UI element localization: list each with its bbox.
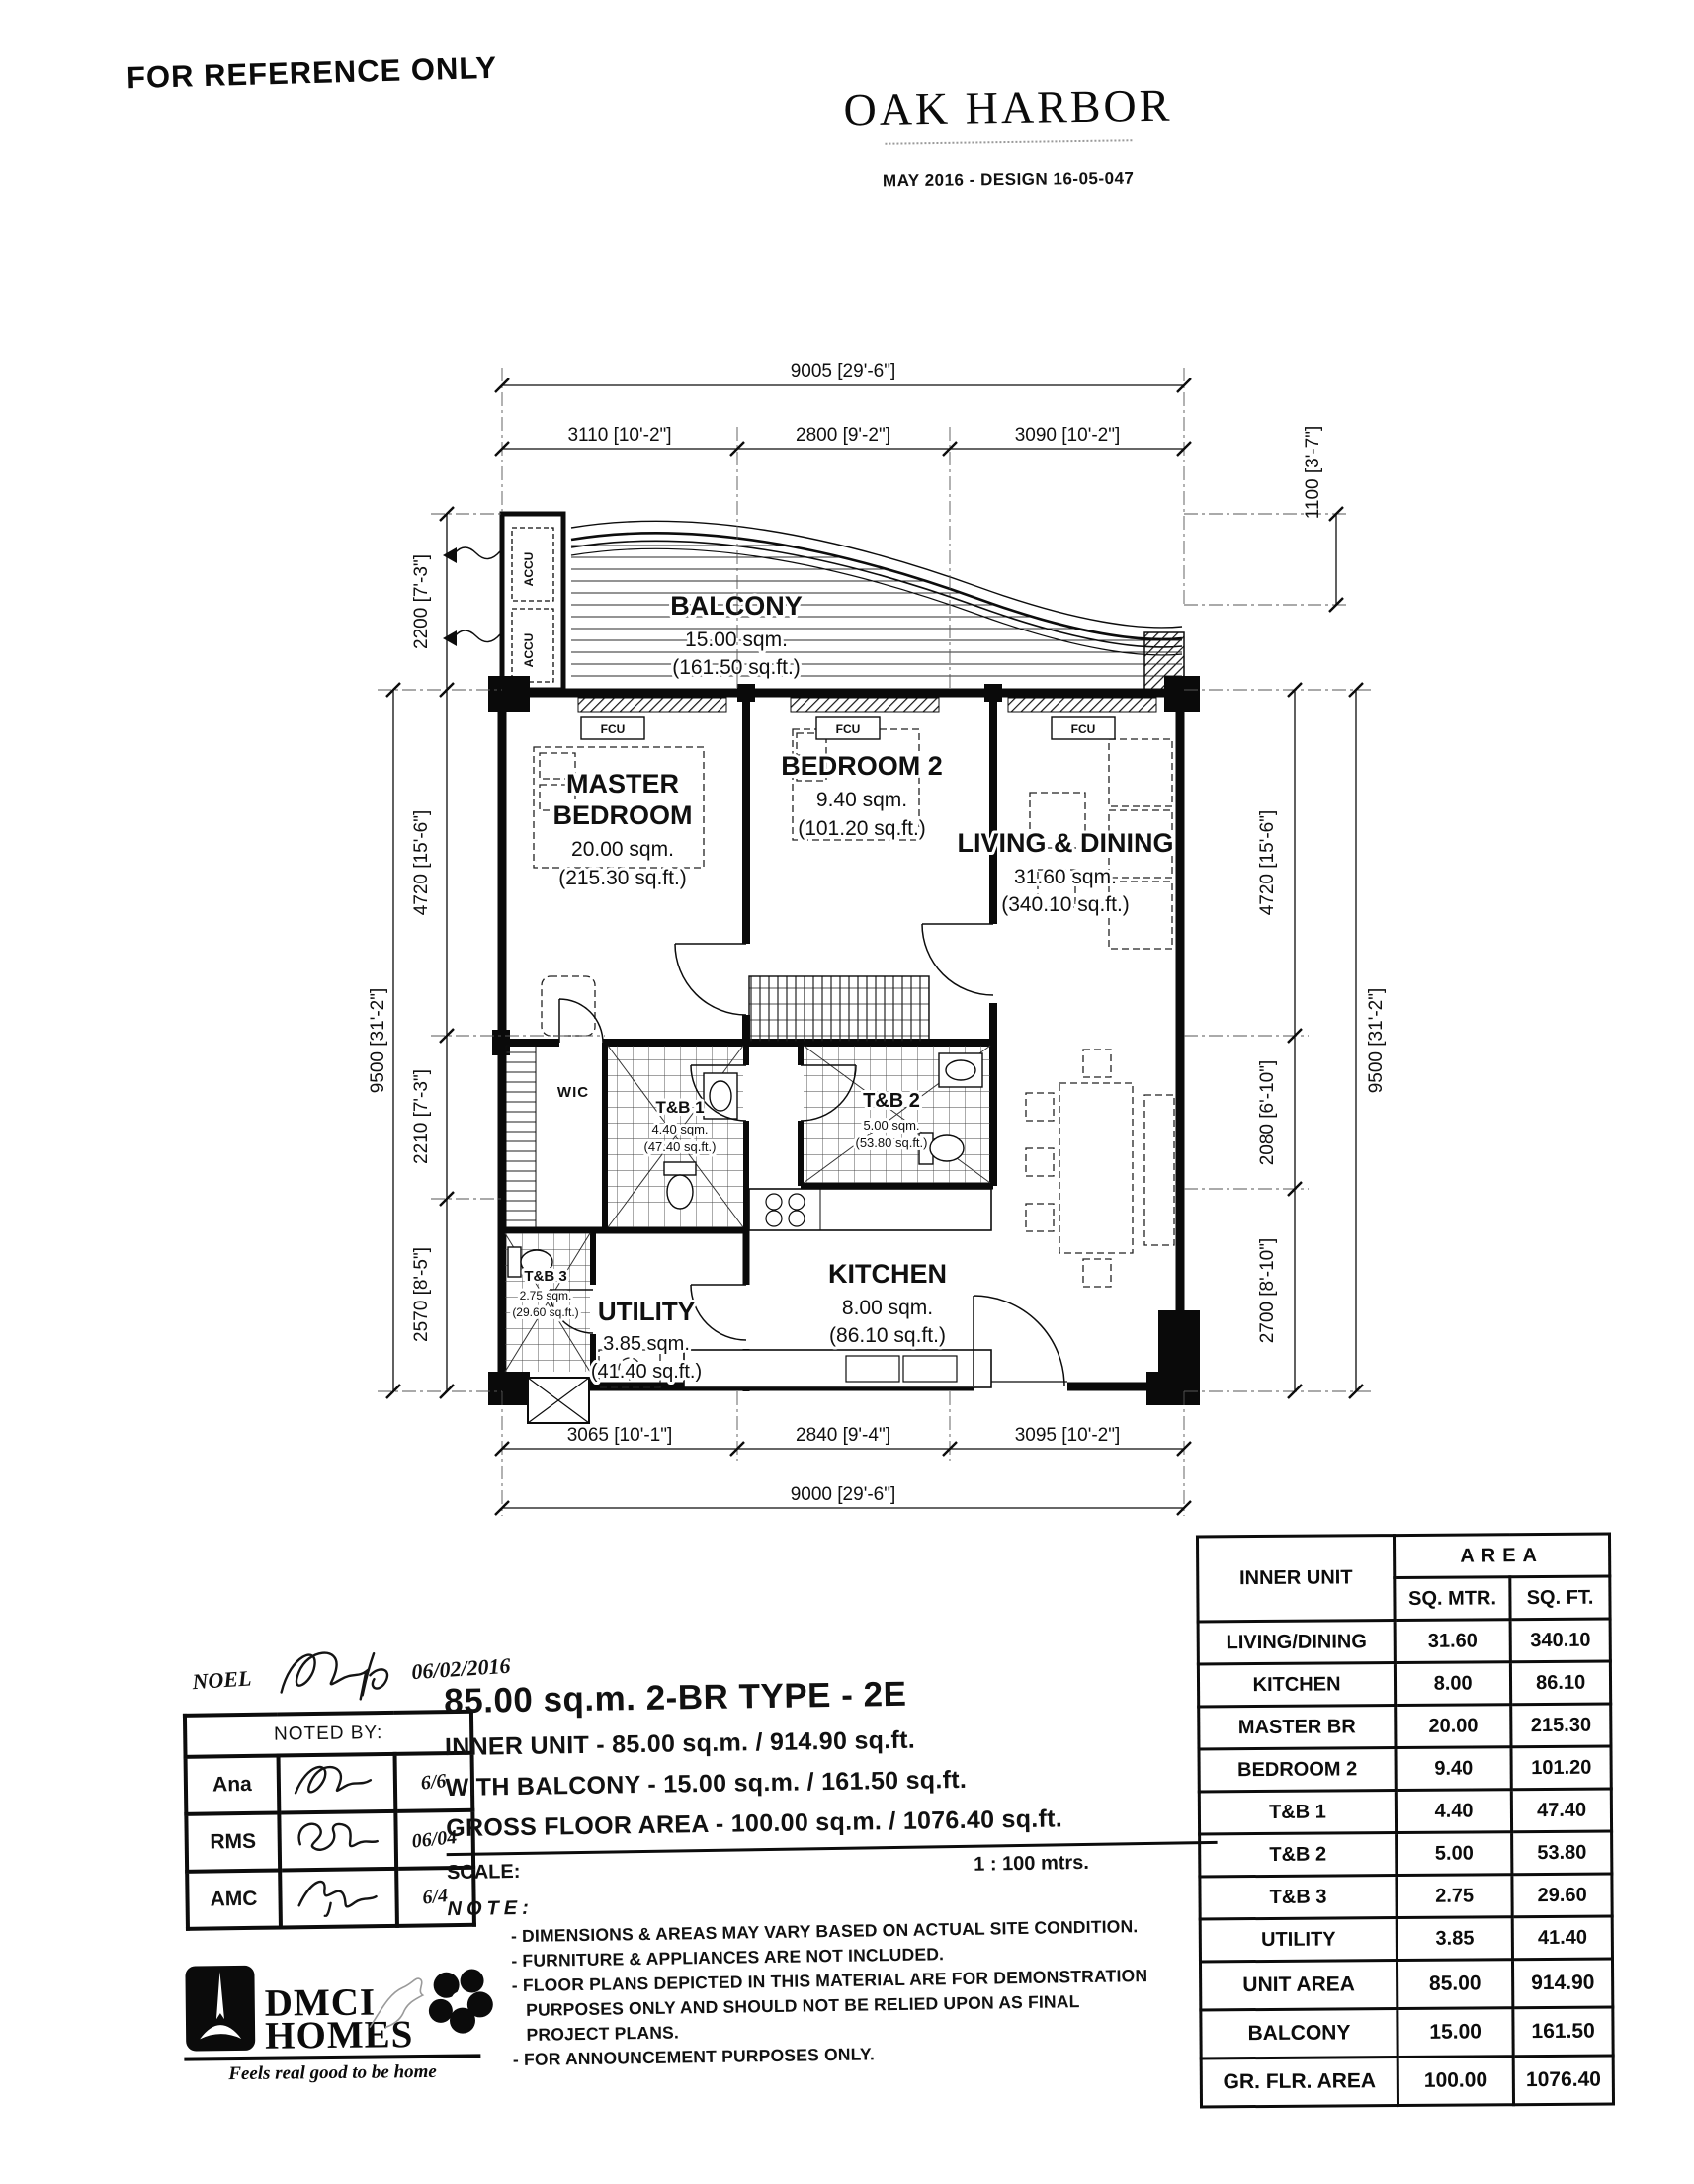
dim-bottom-total: 9000 [29'-6"]	[791, 1484, 896, 1505]
balcony-label: BALCONY	[670, 591, 803, 621]
row-label: LIVING/DINING	[1198, 1621, 1395, 1664]
utility-label: UTILITY	[598, 1297, 695, 1326]
signature-icon	[291, 1873, 386, 1917]
scale-value: 1 : 100 mtrs.	[974, 1852, 1089, 1877]
dim-left-seg: 2570 [8'-5"]	[411, 1247, 432, 1342]
table-row: AMC 6/4	[187, 1868, 474, 1929]
signer-name: RMS	[186, 1813, 280, 1872]
signature-icon	[290, 1758, 385, 1803]
table-row: RMS 06/04	[186, 1810, 473, 1872]
annotation-name: NOEL	[192, 1665, 252, 1695]
table-row: GR. FLR. AREA100.001076.40	[1201, 2056, 1613, 2107]
area-table-sqm-header: SQ. MTR.	[1395, 1577, 1511, 1621]
signature-icon	[290, 1815, 385, 1860]
dim-bottom-seg: 3065 [10'-1"]	[567, 1425, 673, 1446]
dim-right-seg: 4720 [15'-6"]	[1257, 810, 1278, 916]
master-bedroom-sqm: 20.00 sqm.	[571, 838, 674, 861]
master-bedroom-label: MASTER	[566, 769, 679, 798]
summary-line: INNER UNIT - 85.00 sq.m. / 914.90 sq.ft.	[445, 1722, 1216, 1762]
dim-top-seg: 3110 [10'-2"]	[567, 425, 671, 446]
dmci-homes-logo: DMCI HOMES Feels real good to be home	[183, 1959, 480, 2085]
signer-name: Ana	[186, 1756, 280, 1814]
row-sqm: 2.75	[1397, 1875, 1513, 1918]
signer-signature	[279, 1811, 396, 1871]
handwritten-annotation: NOEL 06/02/2016	[146, 1646, 483, 1715]
table-row: UNIT AREA85.00914.90	[1200, 1959, 1612, 2010]
tb3-sqm: 2.75 sqm.	[520, 1289, 572, 1302]
area-table-area-header: AREA	[1394, 1534, 1609, 1578]
tb3-label: T&B 3	[524, 1268, 566, 1285]
note-list: DIMENSIONS & AREAS MAY VARY BASED ON ACT…	[511, 1913, 1221, 2072]
row-sqft: 41.40	[1512, 1916, 1612, 1960]
row-sqft: 86.10	[1511, 1661, 1611, 1705]
noted-by-title: NOTED BY:	[185, 1712, 472, 1757]
area-table-sqft-header: SQ. FT.	[1510, 1576, 1610, 1620]
signer-date: 6/4	[422, 1885, 450, 1909]
row-sqft: 161.50	[1513, 2007, 1613, 2057]
dim-bottom-seg: 2840 [9'-4"]	[796, 1425, 890, 1446]
row-label: UNIT AREA	[1200, 1961, 1397, 2010]
dim-left-seg: 2200 [7'-3"]	[411, 554, 432, 649]
utility-sqm: 3.85 sqm.	[603, 1333, 690, 1355]
living-dining-sqm: 31.60 sqm.	[1014, 866, 1117, 888]
dim-left-seg: 2210 [7'-3"]	[411, 1069, 432, 1164]
bedroom2-sqft: (101.20 sq.ft.)	[798, 817, 926, 840]
table-row: UTILITY3.8541.40	[1200, 1916, 1612, 1962]
dim-top-seg: 3090 [10'-2"]	[1015, 425, 1121, 446]
dim-right-seg: 1100 [3'-7"]	[1303, 426, 1323, 520]
table-row: KITCHEN8.0086.10	[1198, 1661, 1610, 1707]
table-row: LIVING/DINING31.60340.10	[1198, 1619, 1610, 1664]
dmci-tagline: Feels real good to be home	[184, 2060, 480, 2085]
balcony-sqm: 15.00 sqm.	[685, 629, 788, 651]
noted-by-block: NOEL 06/02/2016 NOTED BY: Ana 6/6 RMS 06…	[146, 1646, 486, 1932]
dim-right-total: 9500 [31'-2"]	[1366, 988, 1387, 1094]
row-sqm: 3.85	[1397, 1917, 1513, 1961]
table-row: T&B 25.0053.80	[1200, 1831, 1612, 1877]
dim-bottom-seg: 3095 [10'-2"]	[1015, 1425, 1121, 1446]
tb2-sqm: 5.00 sqm.	[863, 1118, 919, 1133]
tb2-sqft: (53.80 sq.ft.)	[856, 1135, 928, 1150]
design-reference: MAY 2016 - DESIGN 16-05-047	[883, 169, 1135, 192]
signer-signature	[279, 1754, 396, 1813]
scanned-floorplan-sheet: ACCU ACCU	[0, 0, 1694, 2184]
table-row: T&B 32.7529.60	[1200, 1874, 1612, 1919]
tb3-sqft: (29.60 sq.ft.)	[512, 1305, 578, 1319]
table-row: MASTER BR20.00215.30	[1199, 1704, 1611, 1749]
row-sqm: 15.00	[1398, 2008, 1514, 2058]
fcu-label: FCU	[601, 722, 626, 736]
note-item: FLOOR PLANS DEPICTED IN THIS MATERIAL AR…	[512, 1964, 1159, 2048]
bedroom2-label: BEDROOM 2	[781, 751, 943, 781]
row-sqft: 340.10	[1510, 1619, 1610, 1662]
table-row: Ana 6/6	[186, 1753, 473, 1814]
row-sqft: 215.30	[1511, 1704, 1611, 1747]
tb2-label: T&B 2	[863, 1090, 920, 1112]
dmci-obelisk-icon	[183, 1964, 257, 2054]
kitchen-sqft: (86.10 sq.ft.)	[829, 1324, 946, 1347]
wic-label: WIC	[557, 1084, 589, 1101]
row-label: MASTER BR	[1199, 1706, 1396, 1749]
windows	[578, 698, 1156, 712]
dim-right-seg: 2080 [6'-10"]	[1257, 1060, 1278, 1166]
row-label: T&B 2	[1200, 1833, 1397, 1877]
row-label: UTILITY	[1200, 1918, 1397, 1962]
tb1-sqft: (47.40 sq.ft.)	[644, 1139, 717, 1154]
kitchen-label: KITCHEN	[828, 1259, 947, 1289]
signer-signature	[280, 1869, 397, 1928]
row-sqft: 914.90	[1513, 1959, 1613, 2008]
dim-right-seg: 2700 [8'-10"]	[1257, 1238, 1278, 1344]
accu-label: ACCU	[522, 633, 536, 668]
noted-by-table: NOTED BY: Ana 6/6 RMS 06/04 AMC	[183, 1710, 476, 1931]
row-sqm: 100.00	[1398, 2057, 1514, 2106]
master-bedroom-label: BEDROOM	[553, 800, 693, 830]
dim-left-seg: 4720 [15'-6"]	[411, 810, 432, 916]
area-table-col1-header: INNER UNIT	[1197, 1536, 1395, 1622]
accu-label: ACCU	[522, 552, 536, 587]
row-label: T&B 3	[1200, 1876, 1397, 1919]
vent-arrow-icon	[455, 547, 500, 642]
utility-sqft: (41.40 sq.ft.)	[591, 1361, 702, 1383]
row-sqm: 5.00	[1397, 1832, 1513, 1876]
fcu-units: FCU FCU FCU	[581, 717, 1115, 739]
signature-icon	[275, 1638, 424, 1710]
balcony-deck	[569, 521, 1184, 690]
area-table: INNER UNIT AREA SQ. MTR. SQ. FT. LIVING/…	[1196, 1533, 1615, 2109]
row-sqm: 9.40	[1396, 1747, 1512, 1791]
bedroom2-sqm: 9.40 sqm.	[816, 789, 907, 811]
row-label: T&B 1	[1199, 1791, 1396, 1834]
row-label: GR. FLR. AREA	[1201, 2058, 1398, 2107]
table-row: BEDROOM 29.40101.20	[1199, 1746, 1611, 1792]
row-sqft: 53.80	[1512, 1831, 1612, 1875]
row-sqm: 31.60	[1395, 1620, 1511, 1663]
unit-summary: 85.00 sq.m. 2-BR TYPE - 2E INNER UNIT - …	[444, 1670, 1221, 2073]
dim-left-total: 9500 [31'-2"]	[368, 988, 388, 1094]
tb1-label: T&B 1	[655, 1098, 704, 1117]
dim-top-seg: 2800 [9'-2"]	[796, 425, 890, 446]
dim-top-total: 9005 [29'-6"]	[791, 361, 896, 381]
row-sqft: 47.40	[1512, 1789, 1612, 1832]
living-dining-label: LIVING & DINING	[957, 828, 1173, 858]
living-dining-sqft: (340.10 sq.ft.)	[1001, 893, 1130, 916]
master-bedroom-sqft: (215.30 sq.ft.)	[558, 867, 687, 889]
fcu-label: FCU	[836, 722, 861, 736]
table-row: T&B 14.4047.40	[1199, 1789, 1611, 1834]
row-sqm: 4.40	[1396, 1790, 1512, 1833]
balcony-sqft: (161.50 sq.ft.)	[672, 656, 801, 679]
dmci-flower-icon	[422, 1967, 494, 2039]
signer-date: 6/6	[420, 1770, 448, 1795]
row-sqft: 101.20	[1511, 1746, 1611, 1790]
row-sqm: 85.00	[1397, 1960, 1513, 2009]
row-label: KITCHEN	[1198, 1663, 1395, 1707]
signer-name: AMC	[187, 1871, 281, 1929]
table-row: BALCONY15.00161.50	[1201, 2007, 1613, 2058]
summary-line: GROSS FLOOR AREA - 100.00 sq.m. / 1076.4…	[446, 1803, 1217, 1843]
scale-label: SCALE:	[447, 1861, 521, 1885]
shaft-box	[528, 1378, 589, 1423]
brand-logo: OAK HARBOR	[830, 78, 1187, 145]
brand-name: OAK HARBOR	[830, 78, 1187, 135]
row-label: BALCONY	[1201, 2009, 1398, 2058]
kitchen-sqm: 8.00 sqm.	[842, 1297, 933, 1319]
row-sqft: 29.60	[1512, 1874, 1612, 1917]
row-sqft: 1076.40	[1513, 2056, 1613, 2105]
row-sqm: 20.00	[1396, 1705, 1512, 1748]
summary-line: WITH BALCONY - 15.00 sq.m. / 161.50 sq.f…	[445, 1762, 1216, 1803]
fcu-label: FCU	[1071, 722, 1096, 736]
row-sqm: 8.00	[1395, 1662, 1511, 1706]
tb1-sqm: 4.40 sqm.	[651, 1122, 708, 1136]
accu-closet: ACCU ACCU	[443, 514, 563, 690]
row-label: BEDROOM 2	[1199, 1748, 1396, 1792]
